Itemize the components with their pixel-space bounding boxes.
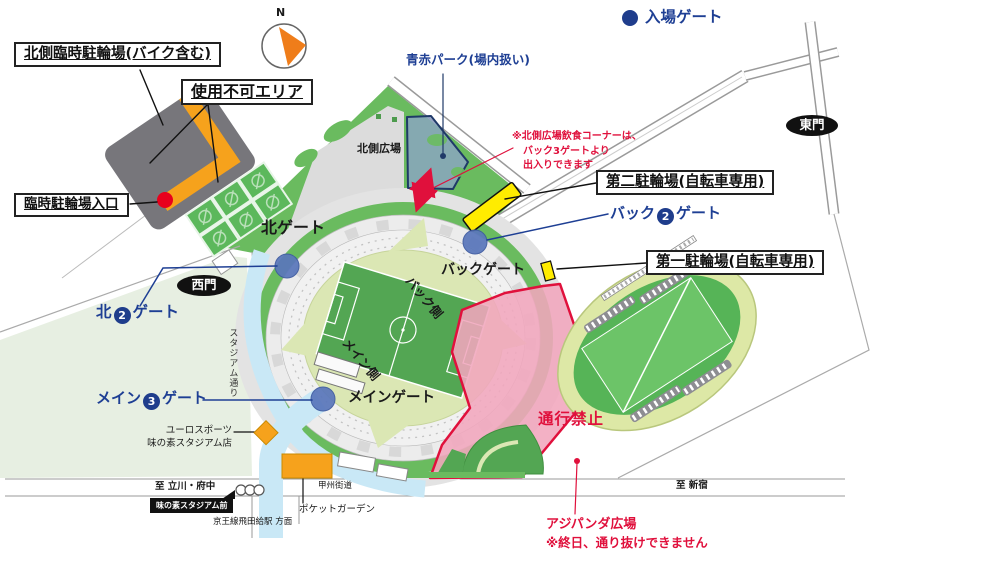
label-north-temp-parking: 北側臨時駐輪場(バイク含む) (14, 42, 221, 67)
note-food-corner-3: 出入りできます (523, 160, 593, 172)
temp-parking-entrance-dot (157, 192, 173, 208)
compass-north-label: N (276, 7, 285, 20)
back2-gate-number: 2 (657, 208, 674, 225)
label-pocket-garden: ポケットガーデン (299, 505, 375, 516)
north2-gate-post: ゲート (133, 303, 180, 321)
label-ajipanda-note: ※終日、通り抜けできません (546, 536, 708, 550)
label-unusable-area: 使用不可エリア (181, 79, 313, 105)
main3-gate-pre: メイン (96, 389, 141, 407)
main3-gate-number: 3 (143, 393, 160, 410)
label-back-gate: バックゲート (441, 262, 525, 278)
label-no-passage: 通行禁止 (538, 411, 604, 429)
label-station-direction: 京王線飛田給駅 方面 (213, 518, 292, 528)
euro-sports-line1: ユーロスポーツ (132, 424, 232, 437)
label-to-shinjuku: 至 新宿 (676, 481, 708, 492)
label-north-plaza: 北側広場 (357, 143, 401, 156)
crossing-circles-icon (236, 485, 264, 495)
label-north2-gate: 北2ゲート (96, 304, 179, 324)
east-gate-badge: 東門 (786, 115, 838, 136)
label-ajipanda-plaza: アジパンダ広場 (546, 518, 636, 533)
entry-gate-legend-label: 入場ゲート (645, 9, 723, 27)
euro-sports-line2: 味の素スタジアム店 (132, 437, 232, 450)
note-food-corner-1: ※北側広場飲食コーナーは、 (512, 131, 642, 143)
label-stadium-street: スタジアム通り (227, 328, 237, 398)
back2-gate-post: ゲート (676, 204, 721, 222)
stadium-map: 北側臨時駐輪場(バイク含む) 使用不可エリア 臨時駐輪場入口 第二駐輪場(自転車… (0, 0, 1000, 563)
back2-gate-pre: バック (610, 204, 655, 222)
label-to-tachikawa: 至 立川・府中 (155, 482, 215, 493)
label-euro-sports: ユーロスポーツ 味の素スタジアム店 (132, 424, 232, 450)
label-main3-gate: メイン3ゲート (96, 390, 207, 410)
west-gate-badge: 西門 (177, 275, 231, 296)
label-koshu-kaido: 甲州街道 (318, 482, 352, 492)
entry-gate-legend-dot (622, 10, 638, 26)
map-graphics (0, 0, 1000, 563)
note-food-corner-2: バック3ゲートより (523, 146, 610, 158)
main3-gate-post: ゲート (162, 389, 207, 407)
label-main-gate: メインゲート (348, 390, 435, 407)
label-bicycle-parking-no1: 第一駐輪場(自転車専用) (646, 250, 824, 275)
label-temp-parking-entrance: 臨時駐輪場入口 (14, 193, 129, 217)
label-back2-gate: バック2ゲート (610, 205, 721, 225)
entry-gate-legend: 入場ゲート (622, 9, 723, 27)
label-north-gate: 北ゲート (261, 219, 325, 237)
label-aoaka-park: 青赤パーク(場内扱い) (406, 53, 530, 67)
aoaka-park-area (407, 116, 468, 189)
bus-stop-flag: 味の素スタジアム前 (150, 498, 233, 513)
north2-gate-pre: 北 (96, 303, 112, 321)
compass-icon (262, 24, 306, 68)
label-bicycle-parking-no2: 第二駐輪場(自転車専用) (596, 170, 774, 195)
north2-gate-number: 2 (114, 307, 131, 324)
